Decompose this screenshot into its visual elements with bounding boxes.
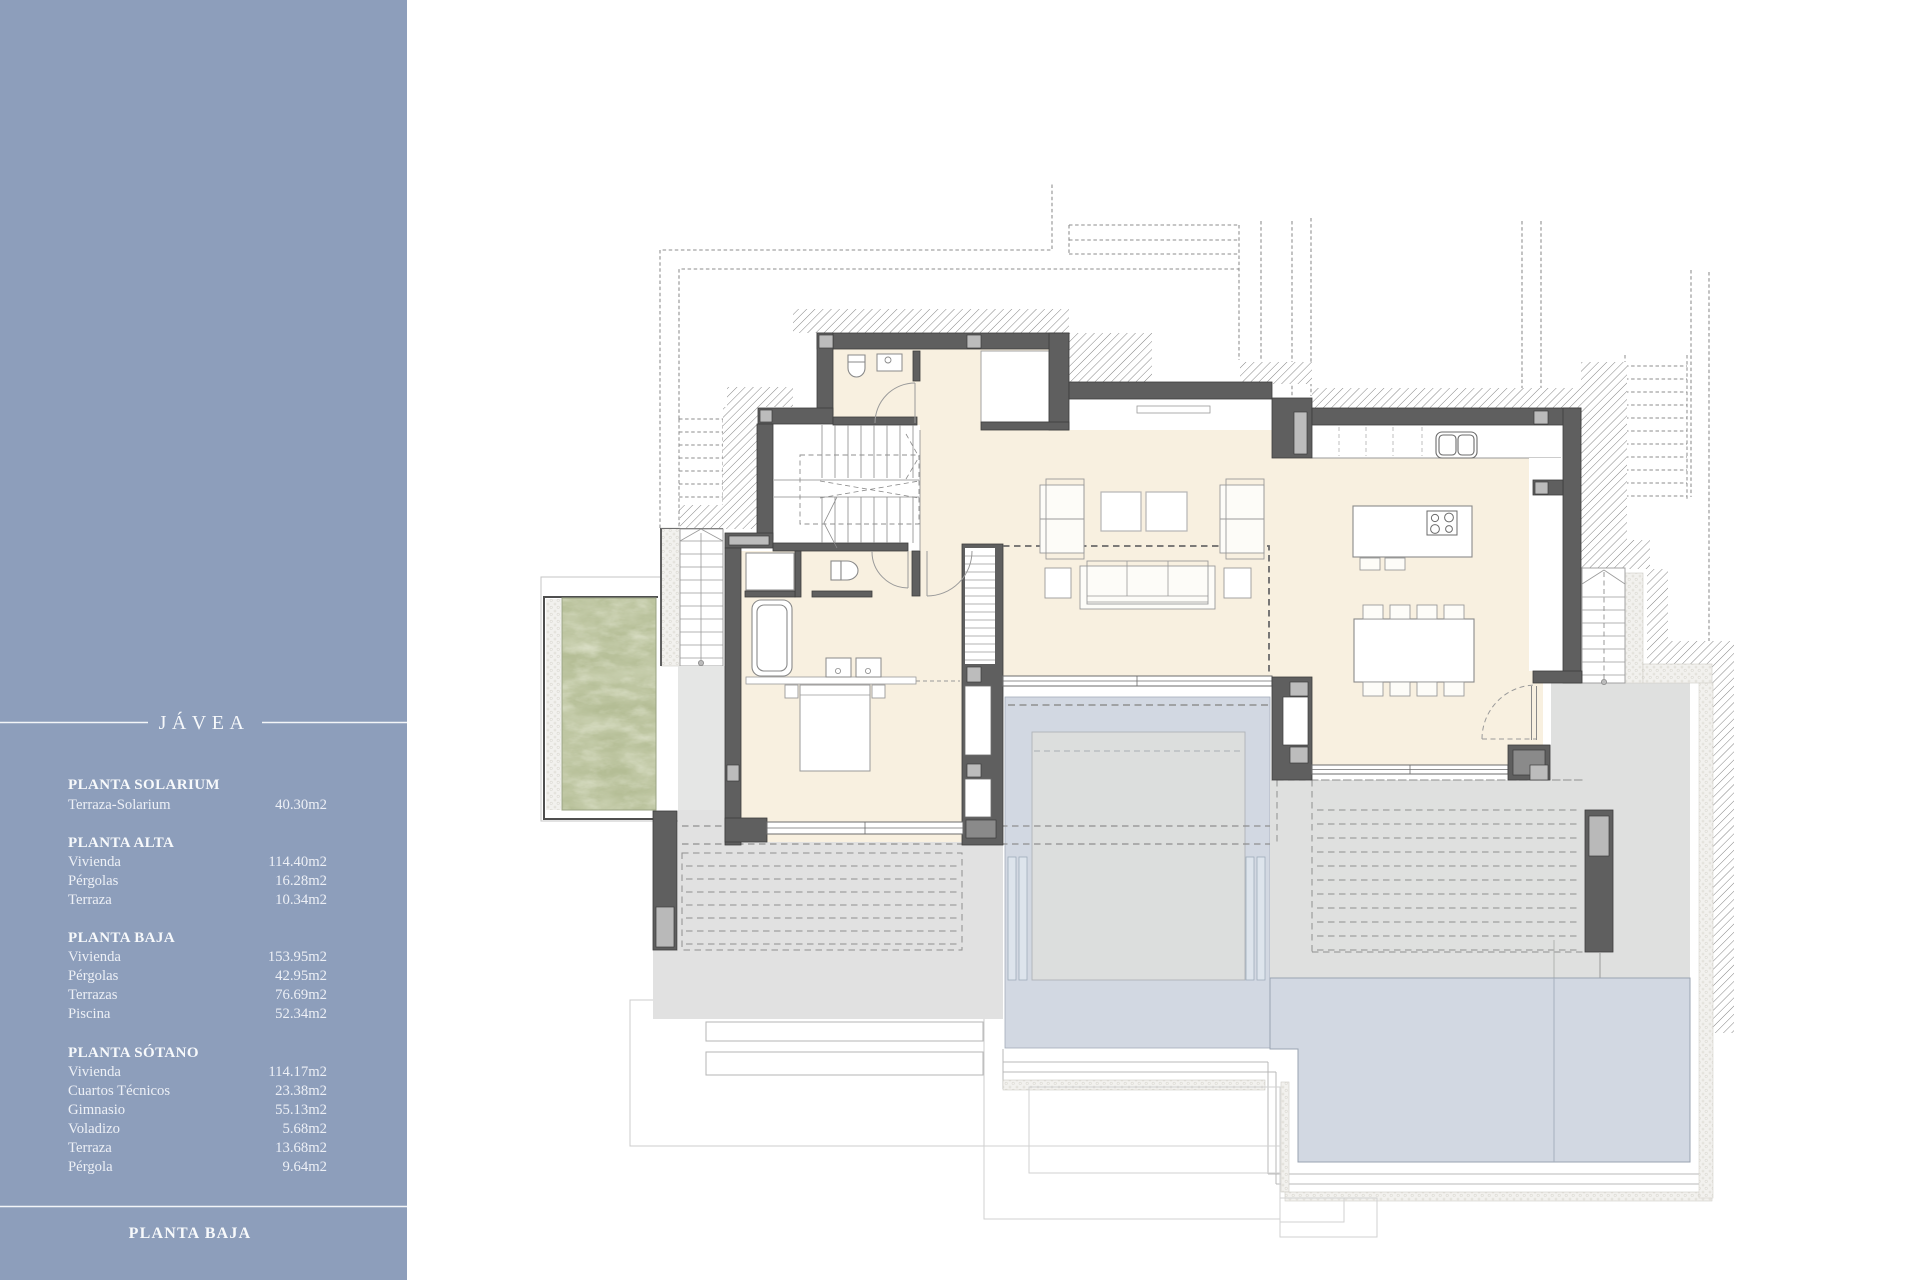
svg-text:Pérgola: Pérgola (68, 1159, 113, 1175)
svg-text:23.38m2: 23.38m2 (275, 1083, 327, 1099)
svg-text:PLANTA BAJA: PLANTA BAJA (129, 1225, 252, 1242)
svg-text:Gimnasio: Gimnasio (68, 1102, 125, 1118)
svg-text:9.64m2: 9.64m2 (283, 1159, 327, 1175)
svg-text:114.40m2: 114.40m2 (268, 854, 327, 870)
svg-text:114.17m2: 114.17m2 (268, 1064, 327, 1080)
svg-text:Piscina: Piscina (68, 1006, 111, 1022)
svg-text:153.95m2: 153.95m2 (268, 949, 327, 965)
svg-text:PLANTA ALTA: PLANTA ALTA (68, 835, 174, 851)
svg-text:5.68m2: 5.68m2 (283, 1121, 327, 1137)
svg-text:Voladizo: Voladizo (68, 1121, 120, 1137)
svg-text:PLANTA SÓTANO: PLANTA SÓTANO (68, 1044, 199, 1061)
svg-text:42.95m2: 42.95m2 (275, 968, 327, 984)
svg-text:Terraza-Solarium: Terraza-Solarium (68, 797, 171, 813)
svg-text:Terrazas: Terrazas (68, 987, 118, 1003)
svg-text:Vivienda: Vivienda (68, 949, 121, 965)
svg-text:40.30m2: 40.30m2 (275, 797, 327, 813)
svg-text:Terraza: Terraza (68, 1140, 112, 1156)
svg-text:16.28m2: 16.28m2 (275, 873, 327, 889)
svg-text:Pérgolas: Pérgolas (68, 873, 119, 889)
svg-text:52.34m2: 52.34m2 (275, 1006, 327, 1022)
svg-text:Vivienda: Vivienda (68, 1064, 121, 1080)
svg-text:Cuartos Técnicos: Cuartos Técnicos (68, 1083, 170, 1099)
svg-text:10.34m2: 10.34m2 (275, 892, 327, 908)
svg-text:76.69m2: 76.69m2 (275, 987, 327, 1003)
svg-text:Pérgolas: Pérgolas (68, 968, 119, 984)
svg-text:Vivienda: Vivienda (68, 854, 121, 870)
svg-text:PLANTA BAJA: PLANTA BAJA (68, 930, 175, 946)
svg-text:13.68m2: 13.68m2 (275, 1140, 327, 1156)
svg-text:Terraza: Terraza (68, 892, 112, 908)
svg-text:JÁVEA: JÁVEA (159, 711, 250, 734)
svg-text:PLANTA SOLARIUM: PLANTA SOLARIUM (68, 777, 220, 793)
svg-text:55.13m2: 55.13m2 (275, 1102, 327, 1118)
